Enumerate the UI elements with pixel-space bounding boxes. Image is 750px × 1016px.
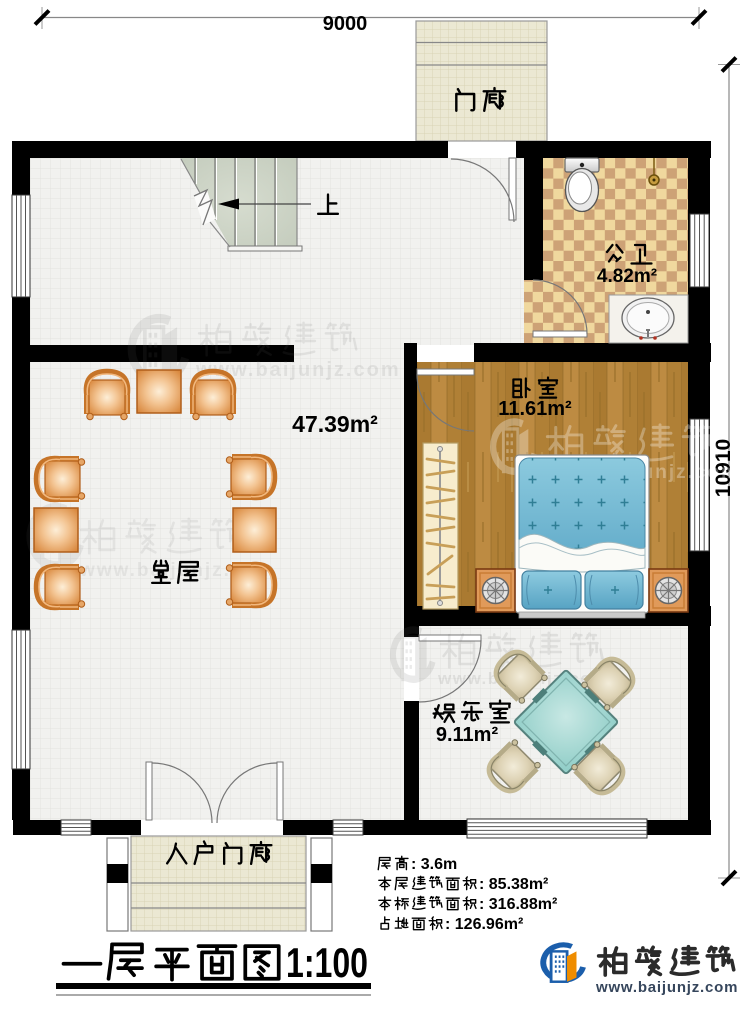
svg-text:: 3.6m: : 3.6m: [411, 856, 457, 873]
svg-text:: 316.88m²: : 316.88m²: [479, 896, 557, 913]
svg-text:11.61m²: 11.61m²: [498, 398, 572, 420]
svg-text:9000: 9000: [323, 13, 368, 35]
svg-text:: 85.38m²: : 85.38m²: [479, 876, 548, 893]
svg-text:www.baijunjz.com: www.baijunjz.com: [595, 979, 738, 996]
svg-text:9.11m²: 9.11m²: [436, 724, 499, 746]
svg-text:47.39m²: 47.39m²: [292, 411, 378, 437]
svg-text:4.82m²: 4.82m²: [597, 266, 657, 287]
svg-text:: 126.96m²: : 126.96m²: [445, 916, 523, 933]
svg-text:1:100: 1:100: [286, 939, 368, 986]
